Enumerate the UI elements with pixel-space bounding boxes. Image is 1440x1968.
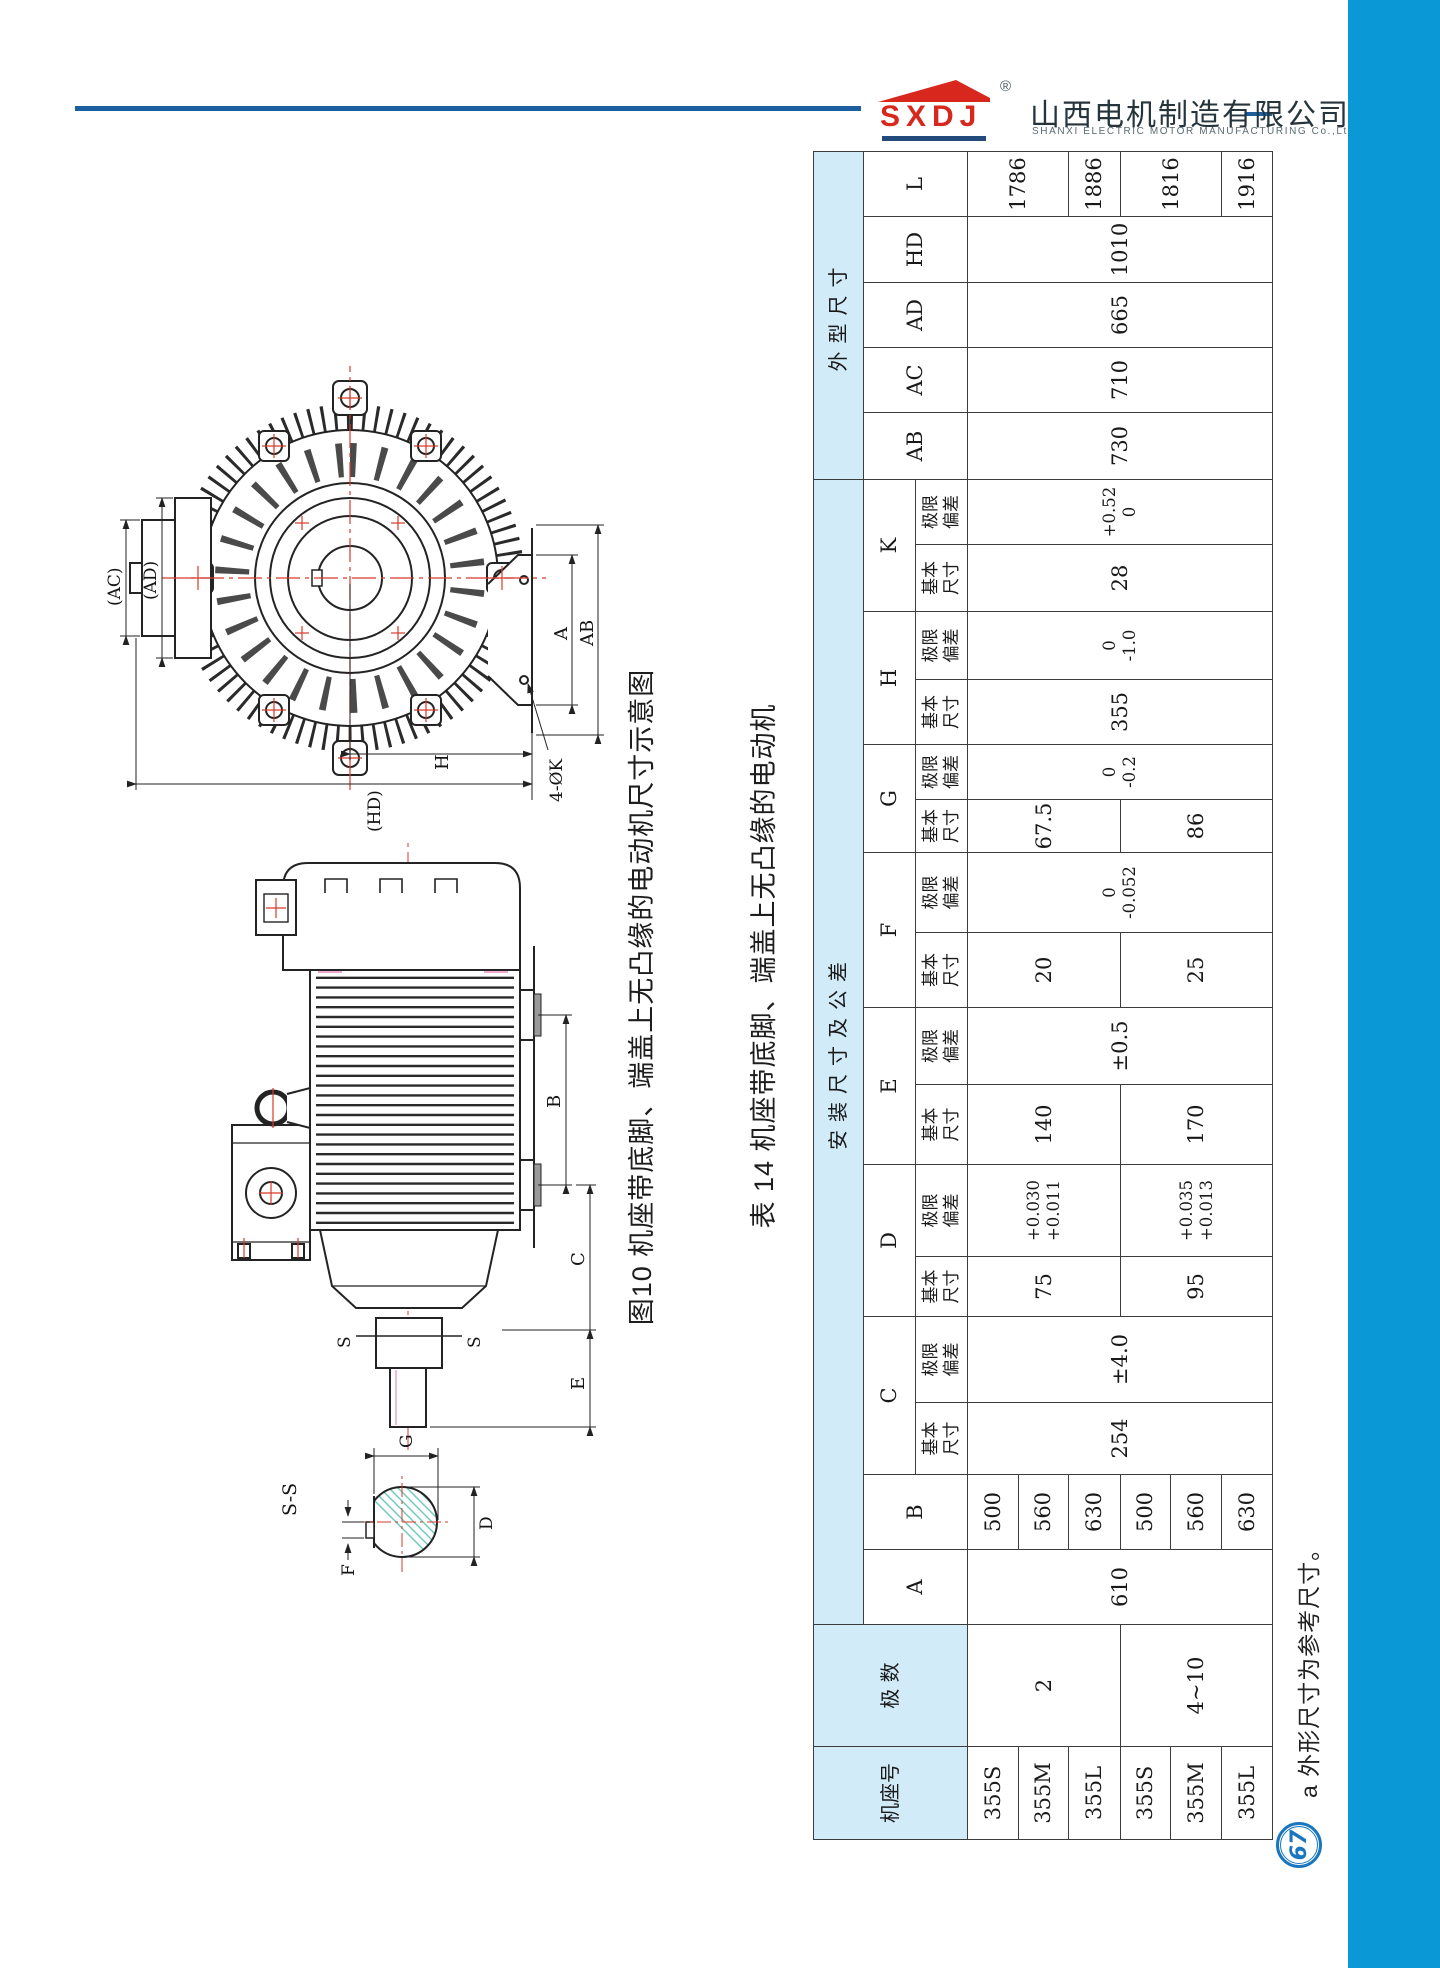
frame-cell: 355L xyxy=(1069,1747,1121,1840)
col-header-AB: AB xyxy=(864,413,968,480)
col-header-poles: 极 数 xyxy=(814,1625,968,1747)
dim-label-d: D xyxy=(477,1516,497,1530)
group-header-overall: 外型尺寸 xyxy=(814,151,864,479)
subheader-basic: 基本尺寸 xyxy=(921,1419,962,1458)
dim-label-hd: (HD) xyxy=(365,790,385,832)
figure-caption: 图10 机座带底脚、端盖上无凸缘的电动机尺寸示意图 xyxy=(620,664,659,1330)
col-header-E: E xyxy=(864,1008,916,1165)
group-header-install: 安装尺寸及公差 xyxy=(814,480,864,1625)
header-row-groups: 机座号 极 数 安装尺寸及公差 外型尺寸 xyxy=(814,151,864,1839)
col-header-B: B xyxy=(864,1475,968,1550)
subheader-dev: 极限偏差 xyxy=(921,626,962,665)
header-row-letters: A B C D E F G H K AB AC AD HD L xyxy=(864,151,916,1839)
subheader-dev: 极限偏差 xyxy=(921,1026,962,1065)
dim-label-ac: (AC) xyxy=(105,567,125,606)
dimension-table: 机座号 极 数 安装尺寸及公差 外型尺寸 A B C D E F G H K A… xyxy=(813,151,1273,1840)
motor-front-view xyxy=(130,366,546,790)
col-header-AD: AD xyxy=(864,283,968,348)
col-header-A: A xyxy=(864,1550,968,1625)
section-mark-s1: S xyxy=(335,1336,355,1348)
table-title: 表 14 机座带底脚、端盖上无凸缘的电动机 xyxy=(742,702,781,1230)
poles-cell: 4~10 xyxy=(1121,1625,1273,1747)
frame-cell: 355M xyxy=(1171,1747,1222,1840)
dim-label-4k: 4-ØK xyxy=(547,759,567,802)
subheader-dev: 极限偏差 xyxy=(921,873,962,912)
col-header-D: D xyxy=(864,1165,916,1317)
frame-cell: 355L xyxy=(1222,1747,1273,1840)
poles-cell: 2 xyxy=(968,1625,1121,1747)
section-mark-s2: S xyxy=(465,1336,485,1348)
col-header-AC: AC xyxy=(864,348,968,413)
col-header-frame: 机座号 xyxy=(814,1747,968,1840)
catalog-page: { "header": { "logo_text": "SXDJ", "regi… xyxy=(0,0,1440,1968)
subheader-basic: 基本尺寸 xyxy=(921,1105,962,1144)
subheader-basic: 基本尺寸 xyxy=(921,950,962,989)
subheader-dev: 极限偏差 xyxy=(921,1340,962,1379)
col-header-HD: HD xyxy=(864,217,968,283)
subheader-dev: 极限偏差 xyxy=(921,1191,962,1230)
dim-label-b: B xyxy=(544,1095,565,1108)
subheader-basic: 基本尺寸 xyxy=(921,692,962,731)
dim-label-ad: (AD) xyxy=(141,561,161,600)
col-header-C: C xyxy=(864,1317,916,1475)
col-header-L: L xyxy=(864,151,968,216)
col-header-K: K xyxy=(864,480,916,612)
dim-label-e: E xyxy=(568,1377,589,1390)
dim-label-h: H xyxy=(432,754,453,770)
section-title: S-S xyxy=(279,1483,301,1516)
col-header-G: G xyxy=(864,745,916,853)
motor-dimension-drawing: B C E S S xyxy=(80,248,640,1688)
table-row: 355S 2 610 500 254 ±4.0 75 +0.030+0.011 … xyxy=(968,151,1019,1839)
dim-label-g: G xyxy=(397,1434,417,1448)
subheader-basic: 基本尺寸 xyxy=(921,1267,962,1306)
dim-label-c: C xyxy=(568,1252,589,1266)
frame-cell: 355M xyxy=(1019,1747,1069,1840)
col-header-F: F xyxy=(864,853,916,1008)
subheader-dev: 极限偏差 xyxy=(921,752,962,791)
page-number: 67 xyxy=(1280,1826,1318,1864)
dim-label-ab: AB xyxy=(577,620,598,647)
page-number-badge: 67 xyxy=(1276,1822,1322,1868)
table-footnote: a 外形尺寸为参考尺寸。 xyxy=(1290,1537,1324,1798)
frame-cell: 355S xyxy=(1121,1747,1171,1840)
shaft-section-detail: S-S F G D xyxy=(279,1395,497,1596)
subheader-basic: 基本尺寸 xyxy=(921,558,962,597)
col-header-H: H xyxy=(864,612,916,745)
subheader-dev: 极限偏差 xyxy=(921,492,962,531)
dim-label-f: F xyxy=(339,1564,359,1576)
subheader-basic: 基本尺寸 xyxy=(921,806,962,845)
rotated-content: B C E S S xyxy=(0,0,1440,1968)
frame-cell: 355S xyxy=(968,1747,1019,1840)
motor-side-view xyxy=(232,840,541,1450)
dim-label-a: A xyxy=(551,626,572,641)
